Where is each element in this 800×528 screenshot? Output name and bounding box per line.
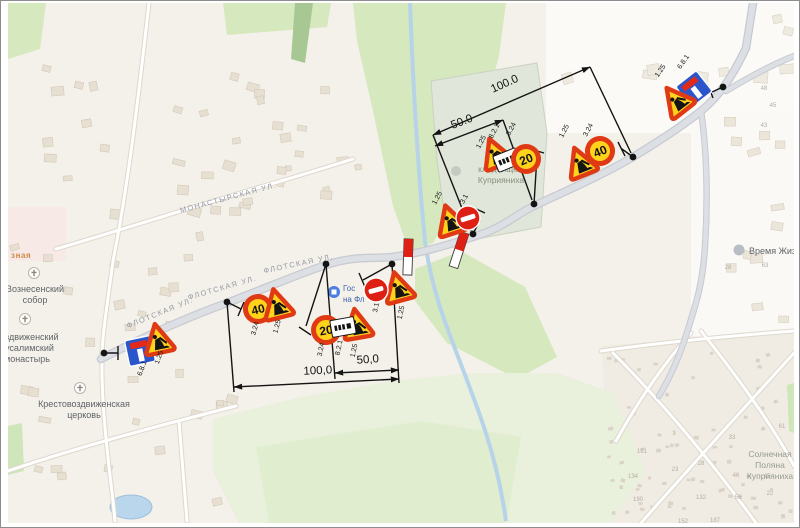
cathedral-icon xyxy=(29,268,40,279)
dim-label-bottom-50: 50,0 xyxy=(356,353,379,367)
building-footprint xyxy=(201,172,213,179)
building-footprint xyxy=(694,436,699,440)
building-footprint xyxy=(752,303,764,311)
cathedral-label-2: собор xyxy=(23,295,48,305)
building-footprint xyxy=(132,418,140,425)
house-number-label: 61 xyxy=(779,424,786,430)
building-footprint xyxy=(100,144,110,152)
building-footprint xyxy=(766,353,771,357)
house-number-label: 48 xyxy=(761,86,768,92)
building-footprint xyxy=(656,449,661,453)
building-footprint xyxy=(63,176,72,182)
building-footprint xyxy=(691,478,695,482)
church-label-2: церковь xyxy=(67,410,101,420)
building-footprint xyxy=(665,393,669,397)
house-number-label: 28 xyxy=(698,461,705,467)
building-footprint xyxy=(44,154,56,162)
building-footprint xyxy=(619,485,623,489)
building-footprint xyxy=(653,363,658,366)
hotel-label-1: Гос xyxy=(343,284,355,293)
house-number-label: 190 xyxy=(633,497,644,503)
building-footprint xyxy=(277,166,287,174)
clipped-street-label: зная xyxy=(11,251,31,260)
building-footprint xyxy=(772,14,782,24)
sign-mount-dot xyxy=(101,350,108,357)
building-footprint xyxy=(710,352,714,356)
building-footprint xyxy=(295,151,304,158)
building-footprint xyxy=(148,268,157,276)
building-footprint xyxy=(51,86,64,96)
building-footprint xyxy=(727,460,731,464)
building-footprint xyxy=(729,445,733,448)
building-footprint xyxy=(751,496,756,500)
building-footprint xyxy=(788,509,792,513)
building-footprint xyxy=(691,376,694,379)
traffic-scheme-screenshot: 40 20 xyxy=(0,0,800,528)
house-number-label: 161 xyxy=(637,449,648,455)
house-number-label: 187 xyxy=(710,518,721,523)
hotel-label-2: на Фл xyxy=(343,295,365,304)
building-footprint xyxy=(51,466,62,473)
church-label-1: Крестовоздвиженская xyxy=(38,399,130,409)
building-footprint xyxy=(662,482,667,485)
solnechnaya-label-2: Поляна xyxy=(755,460,785,470)
map-canvas: 40 20 xyxy=(8,3,794,523)
building-footprint xyxy=(665,445,669,448)
building-footprint xyxy=(778,501,783,504)
house-number-label: 45 xyxy=(764,474,771,480)
building-footprint xyxy=(243,198,253,206)
house-number-label: 43 xyxy=(761,123,768,129)
building-footprint xyxy=(355,164,362,170)
building-footprint xyxy=(637,368,641,371)
house-number-label: 45 xyxy=(770,103,777,109)
building-footprint xyxy=(28,387,39,396)
cemetery-label-2: Куприяниха xyxy=(478,175,524,185)
sign-mount-dot xyxy=(470,231,477,238)
dim-label-bottom-100: 100,0 xyxy=(303,364,332,377)
building-footprint xyxy=(780,64,794,74)
building-footprint xyxy=(779,316,789,323)
building-footprint xyxy=(320,191,332,200)
hotel-poi-glyph xyxy=(332,290,337,295)
sign-mount-dot xyxy=(630,154,637,161)
building-footprint xyxy=(670,444,674,448)
sign-mount-dot xyxy=(389,261,396,268)
building-footprint xyxy=(771,221,784,231)
house-number-label: 152 xyxy=(678,519,689,523)
house-number-label: 63 xyxy=(762,263,769,269)
house-number-label: 33 xyxy=(729,435,736,441)
building-footprint xyxy=(280,133,291,143)
building-footprint xyxy=(212,497,223,506)
building-footprint xyxy=(724,117,735,126)
vremya-label: Время Жиз xyxy=(749,246,794,256)
sign-mount-dot xyxy=(531,201,538,208)
building-footprint xyxy=(731,137,742,146)
building-footprint xyxy=(184,254,193,261)
building-footprint xyxy=(700,480,705,483)
house-number-label: 56 xyxy=(735,495,742,501)
building-footprint xyxy=(196,232,204,242)
building-footprint xyxy=(63,287,72,295)
barrier-post-left xyxy=(403,239,413,275)
building-footprint xyxy=(230,208,241,216)
building-footprint xyxy=(775,141,785,148)
sign-mount-dot xyxy=(323,261,330,268)
vremya-poi-icon xyxy=(734,245,745,256)
building-footprint xyxy=(256,96,264,105)
building-footprint xyxy=(210,206,220,215)
building-footprint xyxy=(230,72,240,81)
house-number-label: 28 xyxy=(725,265,732,271)
building-footprint xyxy=(627,406,631,409)
building-footprint xyxy=(217,400,224,405)
building-footprint xyxy=(609,440,613,444)
building-footprint xyxy=(89,81,98,92)
building-footprint xyxy=(759,131,770,140)
building-footprint xyxy=(177,185,189,195)
house-number-label: 22 xyxy=(767,491,774,497)
building-footprint xyxy=(232,137,241,144)
building-footprint xyxy=(57,472,66,480)
sign-mount-dot xyxy=(720,84,727,91)
sign-mount-dot xyxy=(224,299,231,306)
building-footprint xyxy=(114,299,126,310)
building-footprint xyxy=(272,121,283,130)
house-number-label: 23 xyxy=(672,467,679,473)
cemetery-poi-icon xyxy=(451,166,461,176)
building-footprint xyxy=(128,376,138,382)
building-footprint xyxy=(607,456,611,459)
building-footprint xyxy=(711,429,715,432)
building-footprint xyxy=(86,338,95,346)
monastery-icon xyxy=(20,314,31,325)
monastery-label-2: русалимский xyxy=(8,343,54,353)
building-footprint xyxy=(744,415,748,419)
building-footprint xyxy=(741,483,745,487)
monastery-label-1: воздвиженский xyxy=(8,332,59,342)
distance-plate-icon xyxy=(330,317,357,338)
house-number-label: 134 xyxy=(628,474,639,480)
solnechnaya-label-1: Солнечная xyxy=(748,449,792,459)
house-number-label: 46 xyxy=(733,473,740,479)
building-footprint xyxy=(42,137,53,147)
building-footprint xyxy=(607,357,612,360)
building-footprint xyxy=(155,446,166,455)
cathedral-label-1: Вознесенский xyxy=(8,284,64,294)
building-footprint xyxy=(321,87,330,94)
building-footprint xyxy=(81,119,92,128)
building-footprint xyxy=(753,506,758,510)
building-footprint xyxy=(612,511,615,514)
building-footprint xyxy=(169,283,179,292)
church-icon xyxy=(75,383,86,394)
house-number-label: 132 xyxy=(696,495,707,501)
building-footprint xyxy=(43,255,52,262)
building-footprint xyxy=(176,369,184,377)
monastery-label-3: монастырь xyxy=(8,354,50,364)
